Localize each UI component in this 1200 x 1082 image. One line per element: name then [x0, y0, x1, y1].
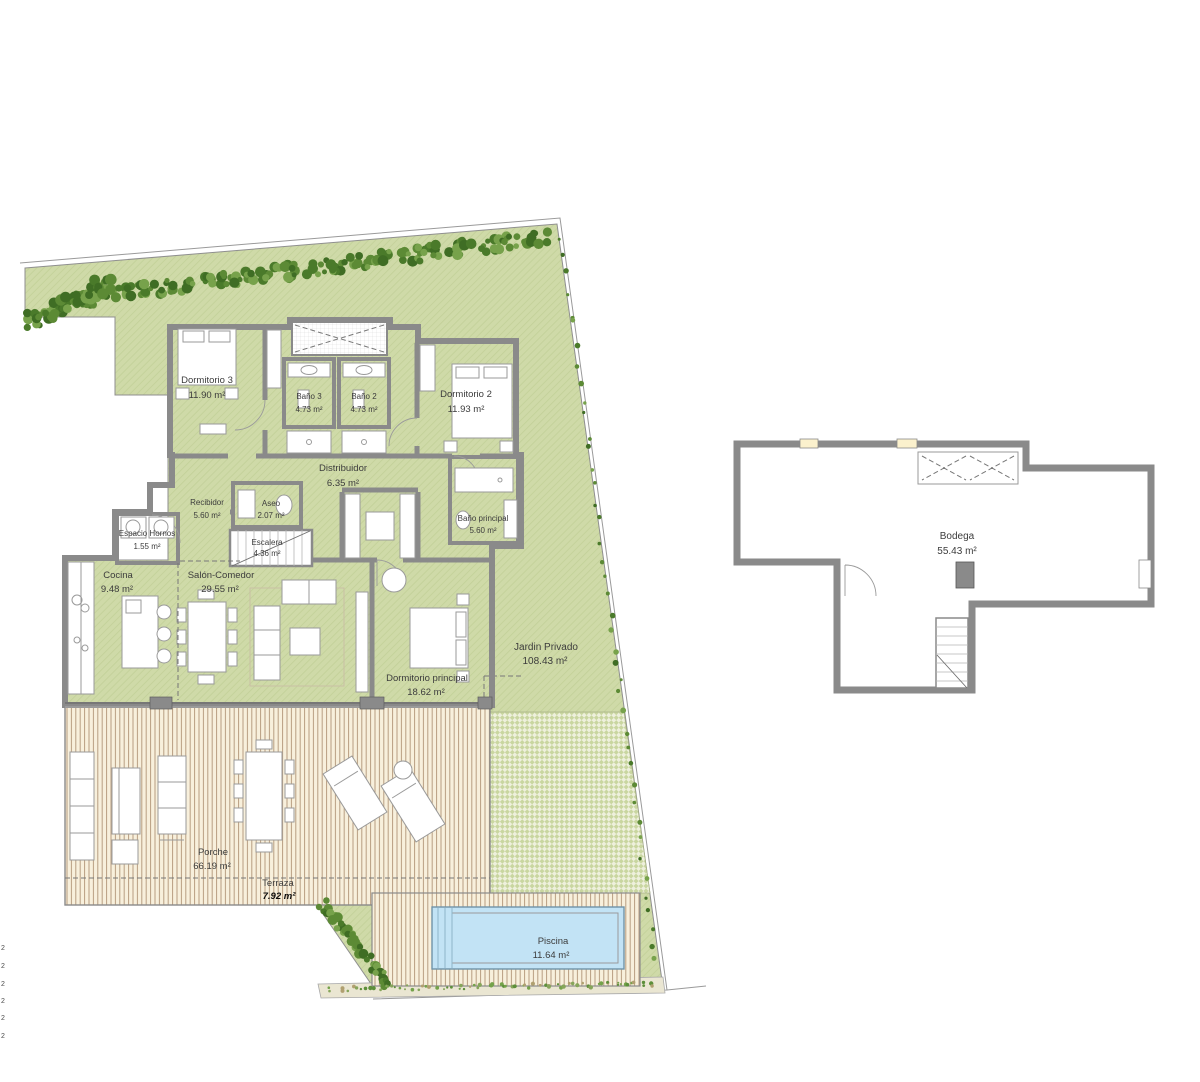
area-porche: 66.19 m² [193, 861, 231, 872]
bodega-stairs [936, 618, 968, 688]
area-bano2: 4.73 m² [350, 405, 377, 414]
area-escalera: 4.36 m² [253, 549, 280, 558]
staircase [230, 530, 312, 566]
area-cocina: 9.48 m² [101, 584, 133, 595]
bodega-plan [737, 439, 1151, 690]
label-dormitorio3: Dormitorio 3 [181, 375, 233, 386]
label-bano2: Baño 2 [351, 392, 377, 401]
garden-checker-zone [482, 712, 650, 893]
bodega-column [956, 562, 974, 588]
porch-deck [65, 703, 490, 905]
area-bano-principal: 5.60 m² [469, 526, 496, 535]
porch-lounge-chair [158, 756, 186, 840]
label-jardin: Jardin Privado [514, 642, 578, 653]
area-dormitorio3: 11.90 m² [189, 390, 226, 401]
margin-mark: 2 [1, 998, 5, 1005]
label-dormitorio-principal: Dormitorio principal [386, 673, 468, 684]
pool [432, 907, 624, 969]
margin-mark: 2 [1, 963, 5, 970]
label-salon: Salón-Comedor [188, 570, 255, 581]
porch-sofa-1 [70, 752, 94, 860]
area-dormitorio2: 11.93 m² [448, 404, 485, 415]
label-bano-principal: Baño principal [458, 514, 509, 523]
margin-mark: 2 [1, 945, 5, 952]
area-salon: 29.55 m² [201, 584, 239, 595]
label-bodega: Bodega [940, 531, 975, 542]
area-bano3: 4.73 m² [295, 405, 322, 414]
margin-mark: 2 [1, 981, 5, 988]
area-jardin: 108.43 m² [522, 656, 568, 667]
area-distribuidor: 6.35 m² [327, 478, 359, 489]
margin-legend-fragments: 2 2 2 2 2 2 [1, 945, 5, 1040]
bodega-niche [1139, 560, 1151, 588]
floor-plan-svg: Dormitorio 3 11.90 m² Baño 3 4.73 m² Bañ… [0, 0, 1200, 1082]
bodega-vent [800, 439, 818, 448]
label-distribuidor: Distribuidor [319, 463, 367, 474]
area-espacio: 1.55 m² [133, 542, 160, 551]
label-recibidor: Recibidor [190, 498, 224, 507]
bodega-door-arc [845, 565, 876, 596]
porch-sofa-2 [112, 768, 140, 864]
label-dormitorio2: Dormitorio 2 [440, 389, 492, 400]
label-espacio: Espacio Hornos [119, 529, 175, 538]
lightwell [292, 322, 387, 355]
label-escalera: Escalera [251, 538, 283, 547]
label-bano3: Baño 3 [296, 392, 322, 401]
margin-mark: 2 [1, 1033, 5, 1040]
label-piscina: Piscina [538, 936, 569, 947]
porch-side-table [394, 761, 412, 779]
margin-mark: 2 [1, 1015, 5, 1022]
label-cocina: Cocina [103, 570, 133, 581]
label-aseo: Aseo [262, 499, 281, 508]
area-aseo: 2.07 m² [257, 511, 284, 520]
area-recibidor: 5.60 m² [193, 511, 220, 520]
bodega-vent [897, 439, 917, 448]
label-porche: Porche [198, 847, 228, 858]
area-terraza: 7.92 m² [263, 891, 297, 902]
label-terraza: Terraza [262, 878, 294, 889]
floor-plan-page: Dormitorio 3 11.90 m² Baño 3 4.73 m² Bañ… [0, 0, 1200, 1082]
area-dormitorio-principal: 18.62 m² [407, 687, 445, 698]
bodega-skylight [918, 452, 1018, 484]
pool-area [372, 893, 640, 986]
area-bodega: 55.43 m² [937, 546, 977, 557]
area-piscina: 11.64 m² [533, 950, 570, 961]
